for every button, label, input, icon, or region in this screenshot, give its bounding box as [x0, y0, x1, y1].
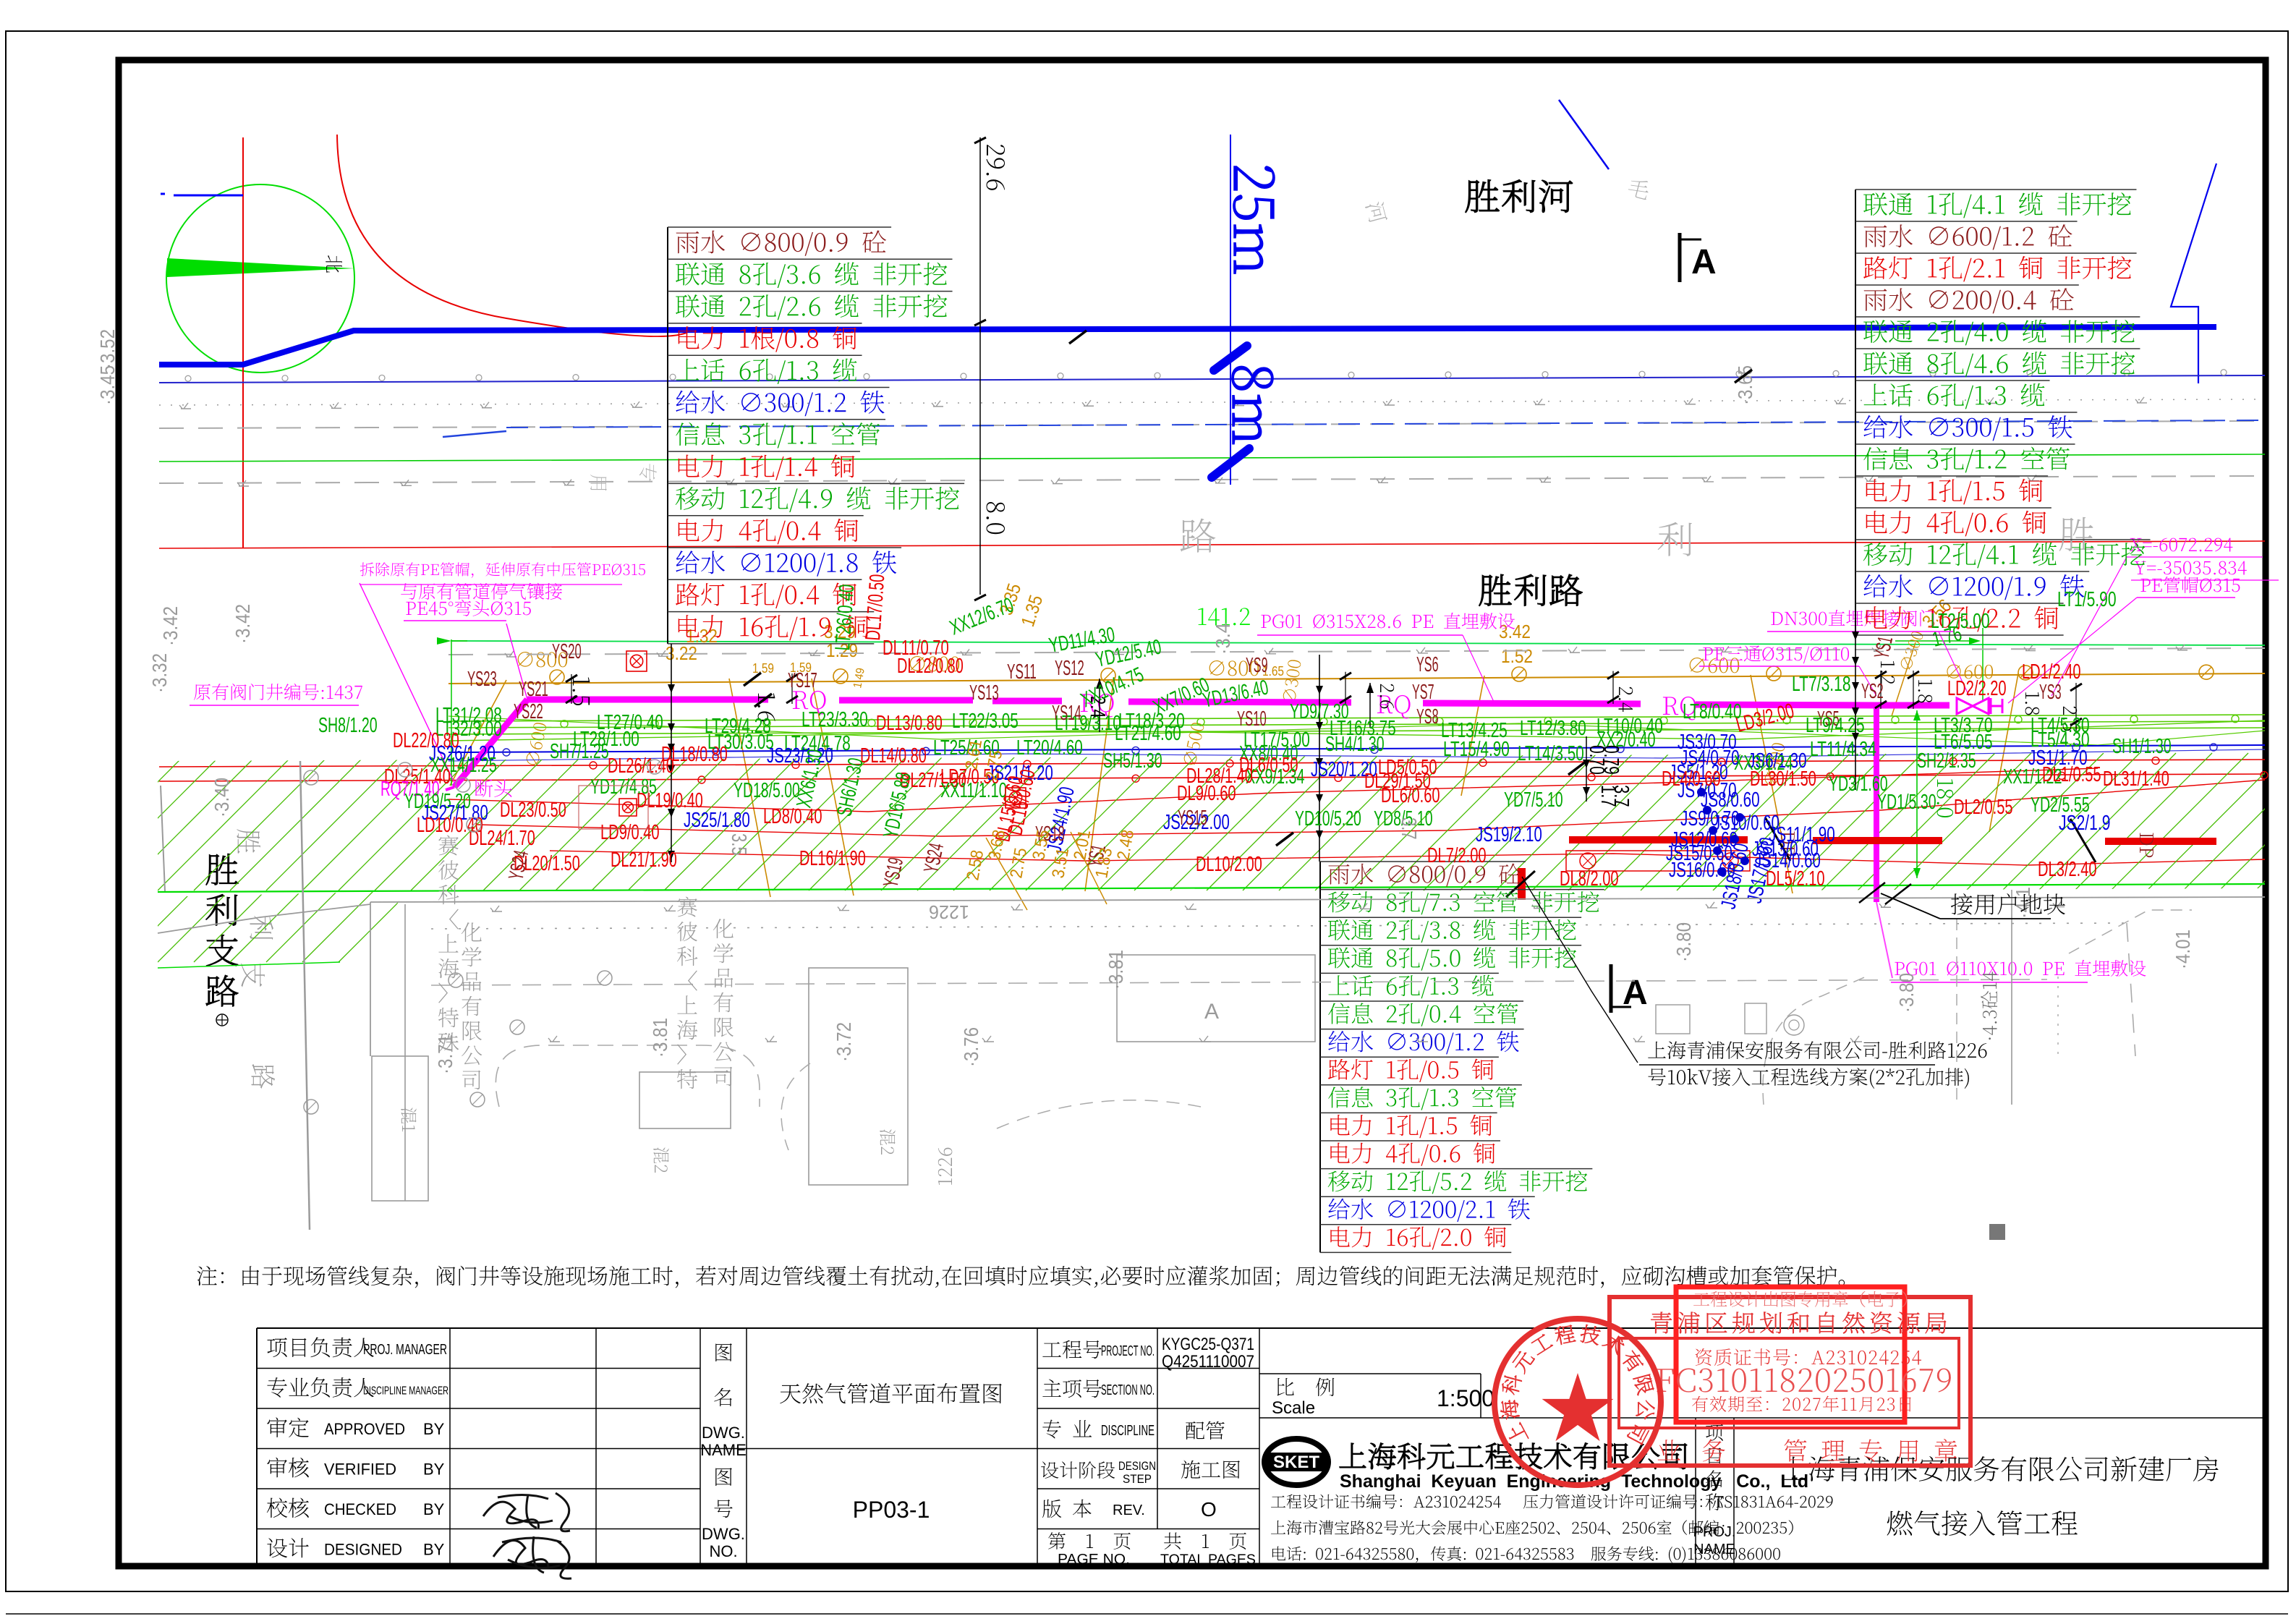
svg-text:YD17/4.85: YD17/4.85 — [590, 775, 657, 799]
svg-text:SKET: SKET — [1273, 1453, 1319, 1472]
svg-text:·3.52: ·3.52 — [96, 329, 119, 369]
svg-text:3.7: 3.7 — [1610, 785, 1633, 807]
svg-text:KYGC25-Q371: KYGC25-Q371 — [1162, 1335, 1254, 1354]
svg-text:XX11/1.10: XX11/1.10 — [940, 779, 1007, 802]
svg-text:·4.01: ·4.01 — [2172, 930, 2194, 969]
svg-text:NAME: NAME — [1693, 1542, 1735, 1557]
svg-text:LT23/3.30: LT23/3.30 — [802, 708, 868, 731]
svg-text:NAME: NAME — [700, 1441, 747, 1459]
svg-text:BY: BY — [423, 1500, 445, 1518]
svg-text:YS14: YS14 — [1052, 702, 1081, 725]
svg-text:XX9/1.34: XX9/1.34 — [1246, 765, 1305, 788]
svg-text:SH5/1.30: SH5/1.30 — [1103, 749, 1162, 773]
svg-text:YS17: YS17 — [788, 669, 817, 692]
svg-text:·3.80: ·3.80 — [1672, 922, 1695, 962]
svg-text:Q4251110007: Q4251110007 — [1162, 1352, 1254, 1372]
svg-text:YS13: YS13 — [969, 681, 999, 705]
svg-text:JS2/1.9: JS2/1.9 — [2059, 812, 2110, 835]
svg-text:BY: BY — [423, 1420, 445, 1438]
svg-text:LD2/2.20: LD2/2.20 — [1947, 677, 2007, 700]
svg-text:PP03-1: PP03-1 — [853, 1497, 930, 1523]
svg-text:Scale: Scale — [1272, 1398, 1315, 1418]
svg-text:YS3: YS3 — [2039, 681, 2062, 704]
svg-text:LT27/0.40: LT27/0.40 — [597, 711, 663, 734]
svg-text:YD7/5.10: YD7/5.10 — [1504, 788, 1563, 812]
svg-text:1:500: 1:500 — [1437, 1385, 1494, 1411]
svg-text:·3.65: ·3.65 — [1734, 365, 1756, 405]
svg-text:YS23: YS23 — [467, 668, 497, 691]
svg-text:YS20: YS20 — [552, 640, 582, 663]
svg-text:1.59: 1.59 — [752, 661, 774, 676]
svg-text:YS7: YS7 — [1412, 681, 1434, 704]
svg-text:3.7: 3.7 — [1397, 817, 1420, 840]
svg-text:CHECKED: CHECKED — [324, 1500, 396, 1518]
svg-text:PROJ. MANAGER: PROJ. MANAGER — [363, 1342, 447, 1358]
svg-text:DL1/0.55: DL1/0.55 — [2042, 763, 2101, 786]
svg-text:YS21: YS21 — [519, 678, 548, 701]
svg-text:YS10: YS10 — [1237, 707, 1267, 731]
svg-text:·3.42: ·3.42 — [231, 604, 254, 644]
svg-text:YD1/5.30: YD1/5.30 — [1877, 791, 1936, 814]
svg-text:LT8/0.40: LT8/0.40 — [1683, 700, 1742, 723]
svg-text:SH4/1.30: SH4/1.30 — [1325, 733, 1385, 756]
svg-text:DL12/0.80: DL12/0.80 — [897, 655, 964, 678]
svg-text:YD10/5.20: YD10/5.20 — [1295, 807, 1361, 830]
svg-text:·3.72: ·3.72 — [833, 1022, 855, 1062]
svg-text:NO.: NO. — [709, 1542, 737, 1560]
svg-text:LD9/0.40: LD9/0.40 — [600, 821, 660, 844]
svg-text:LT26/0.40: LT26/0.40 — [831, 584, 859, 652]
svg-text:·3.80: ·3.80 — [1895, 973, 1918, 1013]
svg-text:BY: BY — [423, 1540, 445, 1558]
svg-text:DL3/2.40: DL3/2.40 — [2038, 858, 2097, 881]
svg-text:A: A — [1204, 1000, 1219, 1024]
svg-text:YS15: YS15 — [1178, 807, 1207, 830]
svg-text:STEP: STEP — [1123, 1472, 1152, 1486]
svg-text:0.79: 0.79 — [1599, 745, 1623, 775]
svg-text:LT9/4.25: LT9/4.25 — [1806, 714, 1865, 737]
svg-text:3.5: 3.5 — [727, 833, 750, 856]
svg-text:LT22/3.05: LT22/3.05 — [952, 710, 1019, 733]
svg-text:YD9/7.30: YD9/7.30 — [1290, 700, 1349, 723]
svg-text:DL8/2.00: DL8/2.00 — [1560, 867, 1619, 890]
svg-text:YS9: YS9 — [1246, 654, 1268, 677]
svg-text:·3.4: ·3.4 — [1212, 623, 1234, 655]
svg-text:LT5/4.30: LT5/4.30 — [2031, 728, 2090, 752]
svg-text:O: O — [1201, 1498, 1217, 1521]
svg-text:APPROVED: APPROVED — [324, 1420, 405, 1438]
svg-text:LT1/5.90: LT1/5.90 — [2057, 588, 2117, 611]
svg-text:DL6/0.60: DL6/0.60 — [1381, 784, 1440, 807]
svg-text:·3.81: ·3.81 — [1105, 950, 1127, 990]
svg-text:DL5/2.10: DL5/2.10 — [1766, 867, 1825, 890]
svg-text:A: A — [1691, 243, 1717, 281]
svg-text:DWG.: DWG. — [702, 1525, 745, 1543]
svg-text:DL10/2.00: DL10/2.00 — [1196, 853, 1262, 876]
svg-text:VERIFIED: VERIFIED — [324, 1460, 396, 1478]
svg-text:LT11/4.34: LT11/4.34 — [1810, 738, 1876, 761]
svg-text:·3.76: ·3.76 — [960, 1027, 982, 1067]
svg-text:SH8/1.20: SH8/1.20 — [318, 714, 378, 737]
svg-text:DL30/1.50: DL30/1.50 — [1750, 768, 1816, 791]
svg-text:YS8: YS8 — [1416, 705, 1439, 728]
svg-text:YS11: YS11 — [1007, 660, 1037, 684]
svg-text:YS1: YS1 — [1871, 634, 1898, 661]
svg-text:PAGE NO.: PAGE NO. — [1058, 1552, 1130, 1568]
svg-text:TOTAL PAGES: TOTAL PAGES — [1160, 1552, 1256, 1568]
svg-text:1226: 1226 — [929, 901, 969, 923]
svg-text:DESIGNED: DESIGNED — [324, 1540, 402, 1558]
svg-text:DL23/0.50: DL23/0.50 — [500, 799, 566, 822]
svg-text:1.52: 1.52 — [1501, 645, 1533, 667]
svg-text:PROJ.: PROJ. — [1693, 1524, 1736, 1540]
svg-text:DL9/0.60: DL9/0.60 — [1177, 782, 1236, 805]
svg-text:BY: BY — [423, 1460, 445, 1478]
svg-text:LT30/3.05: LT30/3.05 — [707, 731, 774, 754]
svg-text:YS12: YS12 — [1055, 657, 1084, 680]
svg-text:LT15/4.90: LT15/4.90 — [1443, 738, 1510, 761]
svg-text:YS2: YS2 — [1861, 680, 1884, 703]
svg-text:LT21/4.60: LT21/4.60 — [1115, 722, 1181, 745]
svg-text:Shanghai Keyuan Engineering: Shanghai Keyuan Engineering Technology C… — [1340, 1471, 1808, 1492]
svg-text:DESIGN: DESIGN — [1118, 1459, 1156, 1473]
svg-text:DL4/0.60: DL4/0.60 — [1662, 768, 1721, 791]
svg-text:SECTION NO.: SECTION NO. — [1101, 1382, 1155, 1398]
svg-text:3.42: 3.42 — [1499, 621, 1531, 642]
svg-text:LT12/3.80: LT12/3.80 — [1520, 717, 1586, 740]
svg-text:YS6: YS6 — [1416, 653, 1439, 676]
svg-text:REV.: REV. — [1113, 1502, 1145, 1518]
svg-text:·3.81: ·3.81 — [649, 1018, 671, 1058]
svg-text:DL13/0.80: DL13/0.80 — [876, 712, 943, 735]
svg-text:DL31/1.40: DL31/1.40 — [2103, 768, 2169, 791]
svg-text:·3.40: ·3.40 — [211, 778, 233, 817]
svg-text:YS22: YS22 — [514, 700, 543, 723]
svg-text:YD18/5.00: YD18/5.00 — [734, 779, 800, 802]
svg-text:LT14/3.50: LT14/3.50 — [1518, 742, 1584, 765]
svg-text:DL16/1.90: DL16/1.90 — [799, 847, 866, 870]
svg-text:DWG.: DWG. — [702, 1424, 745, 1442]
svg-text:A: A — [1623, 974, 1648, 1012]
svg-text:DL2/0.55: DL2/0.55 — [1954, 796, 2013, 819]
svg-text:DL17/0.50: DL17/0.50 — [862, 574, 889, 642]
svg-text:LT2/5.00: LT2/5.00 — [1931, 610, 1990, 633]
svg-text:·3.42: ·3.42 — [159, 606, 182, 646]
svg-text:DL21/1.90: DL21/1.90 — [611, 849, 677, 872]
svg-text:·3.71: ·3.71 — [434, 1034, 456, 1074]
svg-text:DL7/2.00: DL7/2.00 — [1427, 844, 1487, 867]
svg-text:DISCIPLINE: DISCIPLINE — [1101, 1423, 1155, 1439]
svg-text:JS19/2.10: JS19/2.10 — [1476, 823, 1542, 846]
svg-text:DISCIPLINE MANAGER: DISCIPLINE MANAGER — [363, 1385, 448, 1397]
svg-text:LT6/5.05: LT6/5.05 — [1934, 731, 1993, 754]
svg-text:·3.45: ·3.45 — [96, 365, 119, 405]
svg-text:LT20/4.60: LT20/4.60 — [1016, 736, 1083, 760]
svg-text:·3.32: ·3.32 — [148, 653, 171, 693]
svg-text:DL14/0.80: DL14/0.80 — [860, 744, 927, 768]
svg-text:LT7/3.18: LT7/3.18 — [1792, 673, 1851, 696]
svg-text:PROJECT NO.: PROJECT NO. — [1101, 1343, 1155, 1359]
svg-text:SH1/1.30: SH1/1.30 — [2112, 735, 2172, 758]
